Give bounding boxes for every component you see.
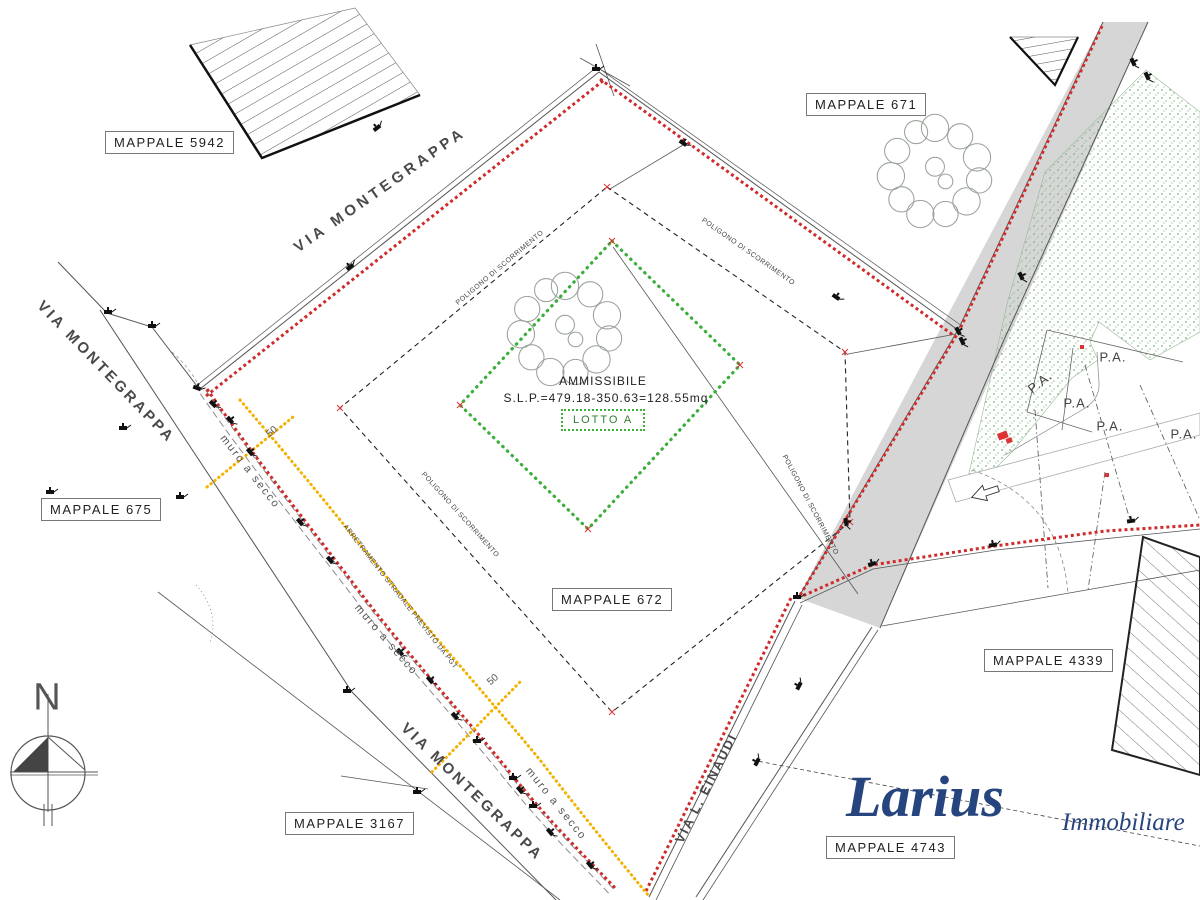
tree-icon	[507, 272, 621, 385]
dashed-curve	[172, 352, 200, 389]
survey-marker-icon	[119, 423, 131, 430]
vertex-cross-icon	[604, 184, 610, 190]
compass-north-label: N	[33, 677, 60, 720]
survey-marker-icon	[832, 291, 846, 304]
parcel-label-4743: MAPPALE 4743	[826, 836, 955, 859]
survey-marker-icon	[46, 487, 58, 494]
parcel-label-3167: MAPPALE 3167	[285, 812, 414, 835]
survey-marker-icon	[793, 677, 805, 691]
lot-slp-label: S.L.P.=479.18-350.63=128.55mq	[504, 391, 709, 405]
survey-marker-icon	[509, 773, 521, 780]
parcel-label-672: MAPPALE 672	[552, 588, 672, 611]
survey-marker-icon	[148, 321, 160, 328]
vertex-cross-icon	[337, 405, 343, 411]
site-plan: MAPPALE 5942 MAPPALE 671 MAPPALE 675 MAP…	[0, 0, 1200, 900]
survey-marker-icon	[592, 64, 604, 71]
logo-brand: Larius	[846, 768, 1004, 826]
tree-icon	[877, 114, 991, 227]
parcel-label-5942: MAPPALE 5942	[105, 131, 234, 154]
pa-label: P.A.	[1100, 350, 1127, 365]
survey-marker-icon	[104, 307, 116, 314]
vertex-cross-icon	[609, 238, 615, 244]
logo-suffix: Immobiliare	[1062, 810, 1185, 835]
node-point	[1080, 345, 1084, 349]
pa-label: P.A.	[1064, 396, 1091, 411]
survey-marker-icon	[751, 753, 763, 767]
dotted-arc	[196, 585, 213, 643]
vertex-cross-icon	[609, 709, 615, 715]
pa-label: P.A.	[1171, 427, 1198, 442]
parcel-label-671: MAPPALE 671	[806, 93, 926, 116]
parcel-label-4339: MAPPALE 4339	[984, 649, 1113, 672]
vertex-cross-icon	[737, 362, 743, 368]
survey-marker-icon	[1126, 515, 1139, 524]
lot-status-label: AMMISSIBILE	[559, 374, 647, 388]
survey-marker-icon	[529, 801, 541, 808]
node-point	[1105, 473, 1109, 477]
survey-marker-icon	[176, 492, 188, 499]
lot-a-tag: LOTTO A	[561, 409, 645, 431]
survey-marker-icon	[988, 539, 1001, 548]
parcel-label-675: MAPPALE 675	[41, 498, 161, 521]
pa-label: P.A.	[1097, 419, 1124, 434]
building-hatched-topright	[1010, 37, 1078, 85]
survey-marker-icon	[371, 119, 385, 132]
